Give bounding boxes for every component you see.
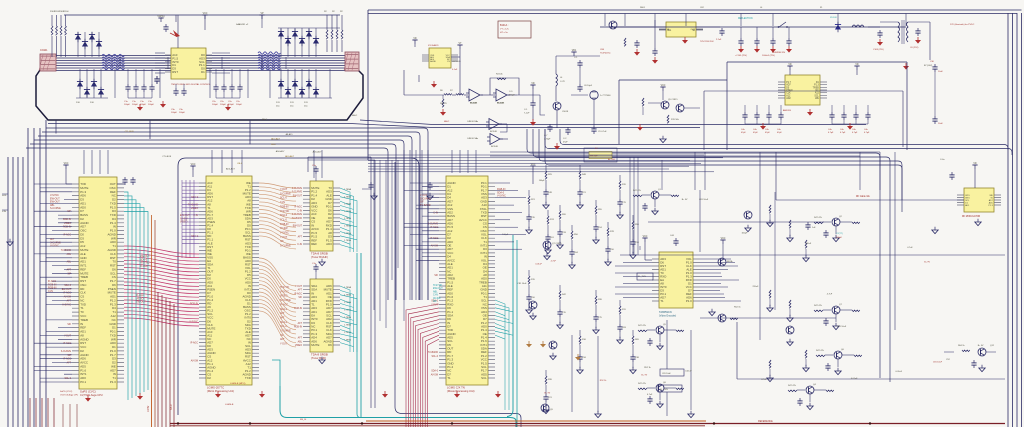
svg-text:VP: VP [260, 13, 264, 15]
svg-text:VCC: VCC [661, 85, 666, 87]
svg-text:TU-BAND: TU-BAND [428, 351, 439, 354]
svg-text:4.7uF: 4.7uF [761, 379, 767, 381]
svg-text:TU-BAND: TU-BAND [420, 204, 431, 207]
svg-text:C81 10uF: C81 10uF [517, 283, 527, 285]
svg-text:AFT: AFT [67, 300, 72, 303]
svg-text:100pF: 100pF [171, 112, 178, 114]
svg-text:4.7pF: 4.7pF [840, 132, 846, 134]
svg-text:(Tuner B/UHF): (Tuner B/UHF) [311, 255, 328, 259]
svg-text:C-IN: C-IN [297, 244, 302, 246]
svg-text:VD: VD [973, 163, 977, 165]
svg-text:AN5265: AN5265 [783, 109, 792, 112]
svg-text:RST: RST [172, 70, 178, 74]
svg-text:+C105 (25V): +C105 (25V) [735, 55, 747, 57]
svg-text:Y-OUT: Y-OUT [64, 335, 72, 337]
svg-text:C9 4.7uF: C9 4.7uF [598, 131, 607, 133]
svg-text:VD: VD [413, 38, 417, 40]
svg-text:220uF: 220uF [805, 243, 812, 245]
svg-text:SIF: SIF [434, 275, 438, 277]
svg-text:A12: A12 [786, 94, 791, 97]
svg-text:CV,TICS Asga CPU: CV,TICS Asga CPU [80, 393, 103, 397]
svg-text:100pF: 100pF [228, 104, 235, 106]
svg-text:100pF: 100pF [124, 104, 131, 106]
svg-text:BC548: BC548 [491, 146, 498, 148]
svg-text:ABL: ABL [67, 261, 72, 264]
svg-text:100pF: 100pF [742, 233, 749, 235]
svg-text:100pF: 100pF [140, 104, 147, 106]
svg-text:AV-SW: AV-SW [64, 296, 72, 299]
svg-text:75uF(10%): 75uF(10%) [600, 52, 611, 54]
svg-text:R76 56k: R76 56k [671, 119, 680, 121]
svg-text:SIF: SIF [67, 324, 71, 326]
svg-text:SDA-0: SDA-0 [191, 196, 198, 199]
svg-text:C9018: C9018 [562, 111, 569, 113]
svg-text:P1.3: P1.3 [110, 380, 116, 384]
svg-text:D6: D6 [328, 343, 332, 347]
svg-text:CV,TICS Asga CPU: CV,TICS Asga CPU [60, 393, 79, 396]
svg-text:R52 1k: R52 1k [734, 307, 742, 309]
svg-text:D1: D1 [201, 70, 205, 74]
svg-text:DEFLECTION: DEFLECTION [738, 18, 753, 20]
svg-text:B101A :: B101A : [500, 24, 509, 27]
svg-text:(Video Encoder): (Video Encoder) [659, 315, 676, 318]
svg-text:100pF: 100pF [236, 104, 243, 106]
svg-text:47pF: 47pF [765, 132, 770, 134]
svg-text:C81 10uF: C81 10uF [662, 373, 672, 375]
svg-text:SCL-0: SCL-0 [431, 356, 438, 358]
svg-text:R601: R601 [640, 7, 646, 9]
svg-text:C6 (25V): C6 (25V) [910, 47, 919, 49]
svg-text:VCC: VCC [191, 164, 196, 166]
svg-text:B+ 9V: B+ 9V [641, 375, 647, 377]
svg-text:SDA-0: SDA-0 [64, 284, 71, 287]
svg-text:SCL: SCL [481, 376, 487, 380]
svg-text:VD: VD [788, 64, 792, 66]
svg-text:100pF: 100pF [179, 112, 186, 114]
svg-text:V-SYNC: V-SYNC [280, 290, 289, 293]
svg-text:IF-AGC: IF-AGC [430, 226, 438, 229]
svg-text:S-CURVE: S-CURVE [292, 188, 303, 190]
svg-text:V-IN: V-IN [2, 211, 7, 213]
svg-text:VCC: VCC [531, 164, 536, 166]
svg-text:ABL: ABL [298, 340, 303, 343]
svg-text:AV-SW: AV-SW [280, 227, 288, 230]
svg-text:7V5OTG8 20V: 7V5OTG8 20V [700, 41, 714, 43]
svg-text:TA8659CN: TA8659CN [659, 310, 672, 314]
svg-text:HT = 5v: HT = 5v [500, 32, 509, 34]
svg-text:(Micro Processing Unit): (Micro Processing Unit) [207, 389, 234, 393]
svg-text:AD0-AD7: AD0-AD7 [313, 151, 323, 154]
svg-text:VCC: VCC [64, 163, 69, 165]
svg-text:C81 10uF: C81 10uF [933, 361, 943, 363]
svg-text:SIF: SIF [298, 297, 302, 299]
svg-text:4A5C: 4A5C [352, 114, 358, 117]
svg-text:R64 1k: R64 1k [958, 345, 966, 347]
svg-text:H-SYNC: H-SYNC [62, 304, 71, 306]
svg-text:AGND: AGND [430, 60, 436, 63]
svg-text:SCL: SCL [814, 95, 819, 97]
svg-text:10uF: 10uF [938, 71, 943, 73]
svg-text:SIF: SIF [67, 273, 71, 275]
svg-text:AFT: AFT [298, 322, 303, 325]
svg-text:S-CURVE: S-CURVE [428, 224, 439, 226]
svg-text:1.789A: 1.789A [344, 286, 351, 289]
svg-text:0.1uF: 0.1uF [452, 69, 458, 71]
svg-text:R52 1k: R52 1k [644, 367, 652, 369]
svg-text:47pF: 47pF [753, 132, 758, 134]
svg-text:220uF: 220uF [753, 286, 760, 288]
svg-text:SDA-0: SDA-0 [431, 370, 438, 373]
svg-text:RGB-IN: RGB-IN [63, 219, 71, 221]
svg-text:C4B BC1Ax: C4B BC1Ax [467, 137, 479, 140]
svg-text:470pF: 470pF [509, 94, 515, 96]
svg-text:R47 47k: R47 47k [788, 385, 797, 387]
svg-text:VD1: VD1 [572, 50, 577, 52]
svg-text:10.5V: 10.5V [147, 405, 150, 412]
svg-text:VCC: VCC [721, 238, 726, 240]
svg-text:ABL: ABL [67, 253, 72, 256]
svg-text:VD: VD [855, 64, 859, 66]
svg-text:AFT: AFT [298, 236, 303, 239]
svg-text:R47 47k: R47 47k [814, 217, 823, 219]
svg-text:C81 10uF: C81 10uF [699, 199, 709, 201]
svg-text:100pF: 100pF [539, 180, 546, 182]
svg-text:AD0-AD7: AD0-AD7 [276, 150, 286, 153]
svg-text:1.789A: 1.789A [344, 225, 351, 228]
svg-text:CTL-BUS: CTL-BUS [125, 131, 135, 133]
svg-text:SCL-0: SCL-0 [64, 378, 71, 380]
svg-text:B+ 9V: B+ 9V [978, 345, 984, 347]
svg-text:1000uF (25V): 1000uF (25V) [762, 55, 775, 57]
svg-text:12V (Heatsink) for PVDC: 12V (Heatsink) for PVDC [950, 23, 975, 26]
svg-text:RF Cable link: RF Cable link [856, 196, 871, 198]
svg-text:AD3: AD3 [326, 242, 332, 246]
svg-text:RGB-IN: RGB-IN [294, 327, 302, 329]
svg-text:4.7pF: 4.7pF [852, 132, 858, 134]
svg-text:R47 47k: R47 47k [633, 190, 642, 192]
svg-text:P1.7: P1.7 [786, 82, 791, 84]
svg-text:B7 (50V): B7 (50V) [924, 65, 933, 67]
svg-text:BC548: BC548 [490, 131, 497, 133]
svg-text:1.789A: 1.789A [344, 301, 351, 304]
svg-text:EW-OUT: EW-OUT [62, 289, 72, 291]
svg-text:VCC: VCC [643, 236, 648, 238]
svg-text:TMP47C434N-3415 DIGITAL CONTRO: TMP47C434N-3415 DIGITAL CONTROL [171, 83, 211, 86]
svg-text:R47 47k: R47 47k [814, 305, 823, 307]
svg-text:H-IN: H-IN [2, 195, 7, 197]
svg-text:3A5C: 3A5C [262, 118, 268, 121]
svg-text:AD2: AD2 [786, 97, 791, 100]
svg-text:100pF: 100pF [212, 104, 219, 106]
svg-text:(Tuner B/UF): (Tuner B/UF) [311, 356, 326, 360]
svg-text:AD0-AD7: AD0-AD7 [271, 137, 281, 140]
svg-text:RGB-IN: RGB-IN [63, 227, 71, 229]
svg-text:0.01uF: 0.01uF [896, 371, 903, 373]
svg-text:4-70pF: 4-70pF [544, 138, 551, 140]
svg-text:2.2uF: 2.2uF [716, 39, 722, 41]
svg-text:47pF: 47pF [777, 132, 782, 134]
svg-text:VD: VD [531, 83, 535, 85]
svg-text:4.7uF: 4.7uF [551, 260, 557, 262]
svg-text:S-CURVE: S-CURVE [292, 214, 303, 216]
svg-text:R47 47k: R47 47k [638, 325, 647, 327]
svg-text:V-SYNC: V-SYNC [497, 195, 506, 198]
svg-text:B+ 9V: B+ 9V [924, 261, 930, 263]
svg-text:1+7777084: 1+7777084 [600, 95, 611, 97]
svg-text:R104: R104 [64, 11, 70, 13]
svg-text:SAA5281 v2: SAA5281 v2 [236, 23, 249, 26]
svg-text:P0.1: P0.1 [80, 380, 86, 384]
svg-text:D2: D2 [207, 376, 211, 380]
svg-text:0.01uF: 0.01uF [535, 263, 542, 265]
svg-text:RGB-IN: RGB-IN [294, 308, 302, 310]
svg-text:AV-SW: AV-SW [431, 245, 439, 248]
svg-text:VCC: VCC [203, 13, 208, 15]
svg-text:AFT: AFT [67, 268, 72, 271]
svg-text:B+ 9V: B+ 9V [682, 199, 688, 201]
svg-text:REFERENCE: REFERENCE [758, 420, 773, 423]
svg-text:7-1uF: 7-1uF [524, 112, 530, 114]
svg-text:R47 47k: R47 47k [816, 350, 825, 352]
svg-text:VD(5v): VD(5v) [157, 16, 164, 18]
svg-text:AD7: AD7 [786, 84, 791, 87]
svg-text:TXD: TXD [245, 376, 251, 380]
svg-text:AFT: AFT [298, 289, 303, 292]
svg-text:IF-AGC: IF-AGC [294, 206, 302, 209]
svg-text:Q5 C1815: Q5 C1815 [668, 99, 678, 101]
svg-text:AFT: AFT [298, 337, 303, 340]
svg-text:DEFWSB 26V: DEFWSB 26V [772, 52, 786, 54]
svg-text:C103 (25V): C103 (25V) [873, 49, 884, 51]
svg-text:47pF: 47pF [741, 132, 746, 134]
svg-text:BC2AK: BC2AK [497, 102, 505, 105]
svg-text:WE: WE [815, 98, 819, 100]
svg-text:4.7pF: 4.7pF [864, 132, 870, 134]
svg-text:SDA-0: SDA-0 [191, 235, 198, 238]
svg-text:S-CURVE: S-CURVE [50, 207, 61, 210]
svg-text:47pF: 47pF [563, 141, 568, 143]
svg-text:Y-OUT: Y-OUT [295, 286, 303, 288]
svg-text:0.01uF: 0.01uF [851, 378, 858, 380]
svg-text:VIDEO: VIDEO [191, 208, 198, 210]
svg-text:A8-A15: A8-A15 [286, 133, 294, 136]
svg-text:B+ 9V: B+ 9V [544, 392, 550, 394]
svg-text:IC8 KA431: IC8 KA431 [428, 44, 439, 47]
svg-text:ZD109: ZD109 [830, 17, 837, 19]
svg-text:IF-AGC: IF-AGC [63, 358, 71, 361]
svg-text:1.789A: 1.789A [344, 239, 351, 242]
svg-text:R4 10k: R4 10k [496, 74, 504, 76]
svg-text:C-IN: C-IN [433, 212, 438, 214]
svg-text:C81 10uF: C81 10uF [837, 326, 847, 328]
svg-text:IF-AGC: IF-AGC [63, 292, 71, 295]
svg-text:IF-AGC: IF-AGC [63, 342, 71, 345]
svg-text:SCL-0: SCL-0 [280, 197, 287, 200]
svg-text:S-CURVE: S-CURVE [61, 351, 72, 353]
svg-text:Q7 C1815: Q7 C1815 [552, 243, 562, 245]
svg-text:P1.0: P1.0 [686, 299, 692, 303]
svg-text:R8|470: R8|470 [440, 103, 448, 105]
svg-text:C-IN: C-IN [297, 210, 302, 212]
svg-text:SIF: SIF [67, 355, 71, 357]
svg-text:4.7uF: 4.7uF [647, 394, 653, 396]
svg-text:(Movie Processing Unit): (Movie Processing Unit) [447, 389, 475, 393]
svg-text:C4B BC2Ax: C4B BC2Ax [467, 120, 479, 123]
svg-text:R47 47k: R47 47k [638, 383, 647, 385]
svg-text:AFT: AFT [67, 362, 72, 365]
svg-text:AD0-AD7: AD0-AD7 [285, 155, 295, 158]
svg-text:LGMS-B (MPU): LGMS-B (MPU) [230, 383, 246, 385]
svg-text:4.7uF: 4.7uF [827, 294, 833, 296]
svg-text:SIF: SIF [433, 300, 437, 303]
svg-text:IF-AGC: IF-AGC [63, 234, 71, 237]
svg-text:TU-BAND: TU-BAND [188, 203, 199, 206]
svg-text:KB-0: KB-0 [170, 404, 173, 410]
svg-text:VT = 12v: VT = 12v [500, 29, 510, 31]
svg-text:4.7uF: 4.7uF [907, 247, 913, 249]
svg-text:LGMS-B: LGMS-B [225, 404, 234, 406]
svg-text:100pF: 100pF [836, 237, 843, 239]
svg-text:100pF: 100pF [132, 104, 139, 106]
svg-text:AD0-AD7: AD0-AD7 [226, 168, 236, 171]
svg-text:SIF: SIF [67, 211, 71, 213]
svg-text:R52 1k: R52 1k [600, 380, 608, 382]
svg-text:VIDEO: VIDEO [64, 223, 71, 225]
svg-text:CN101: CN101 [40, 49, 48, 52]
svg-text:10uF: 10uF [938, 123, 943, 125]
svg-text:0.01uF: 0.01uF [685, 370, 692, 372]
svg-text:CTL-BUS: CTL-BUS [162, 156, 172, 158]
svg-text:4.7pF: 4.7pF [828, 132, 834, 134]
svg-text:100pF: 100pF [220, 104, 227, 106]
svg-text:MUTE: MUTE [311, 343, 319, 347]
svg-text:T1: T1 [660, 299, 664, 303]
svg-text:RF MODULATOR: RF MODULATOR [962, 215, 981, 218]
svg-text:4A5C: 4A5C [444, 120, 450, 123]
svg-text:IF-AGC: IF-AGC [190, 342, 198, 345]
svg-text:TU-BAND: TU-BAND [61, 249, 72, 252]
svg-text:1.789A: 1.789A [344, 188, 351, 191]
svg-text:AV-SW: AV-SW [191, 359, 199, 362]
svg-text:AV-SW: AV-SW [431, 373, 439, 376]
svg-text:C2(T7): C2(T7) [836, 233, 843, 235]
svg-text:IF-AGC: IF-AGC [430, 237, 438, 240]
svg-text:BC2AK: BC2AK [470, 102, 478, 105]
svg-text:1.789A: 1.789A [344, 324, 351, 327]
svg-text:M01A: M01A [727, 260, 733, 263]
svg-text:100pF: 100pF [148, 104, 155, 106]
svg-text:REF: REF [311, 242, 317, 246]
svg-text:KB_SI: KB_SI [300, 419, 307, 421]
svg-text:SoPS (CVC): SoPS (CVC) [60, 391, 73, 393]
svg-text:TREB: TREB [813, 87, 820, 89]
svg-text:C6 10pF: C6 10pF [584, 85, 593, 87]
svg-text:T1: T1 [447, 376, 451, 380]
